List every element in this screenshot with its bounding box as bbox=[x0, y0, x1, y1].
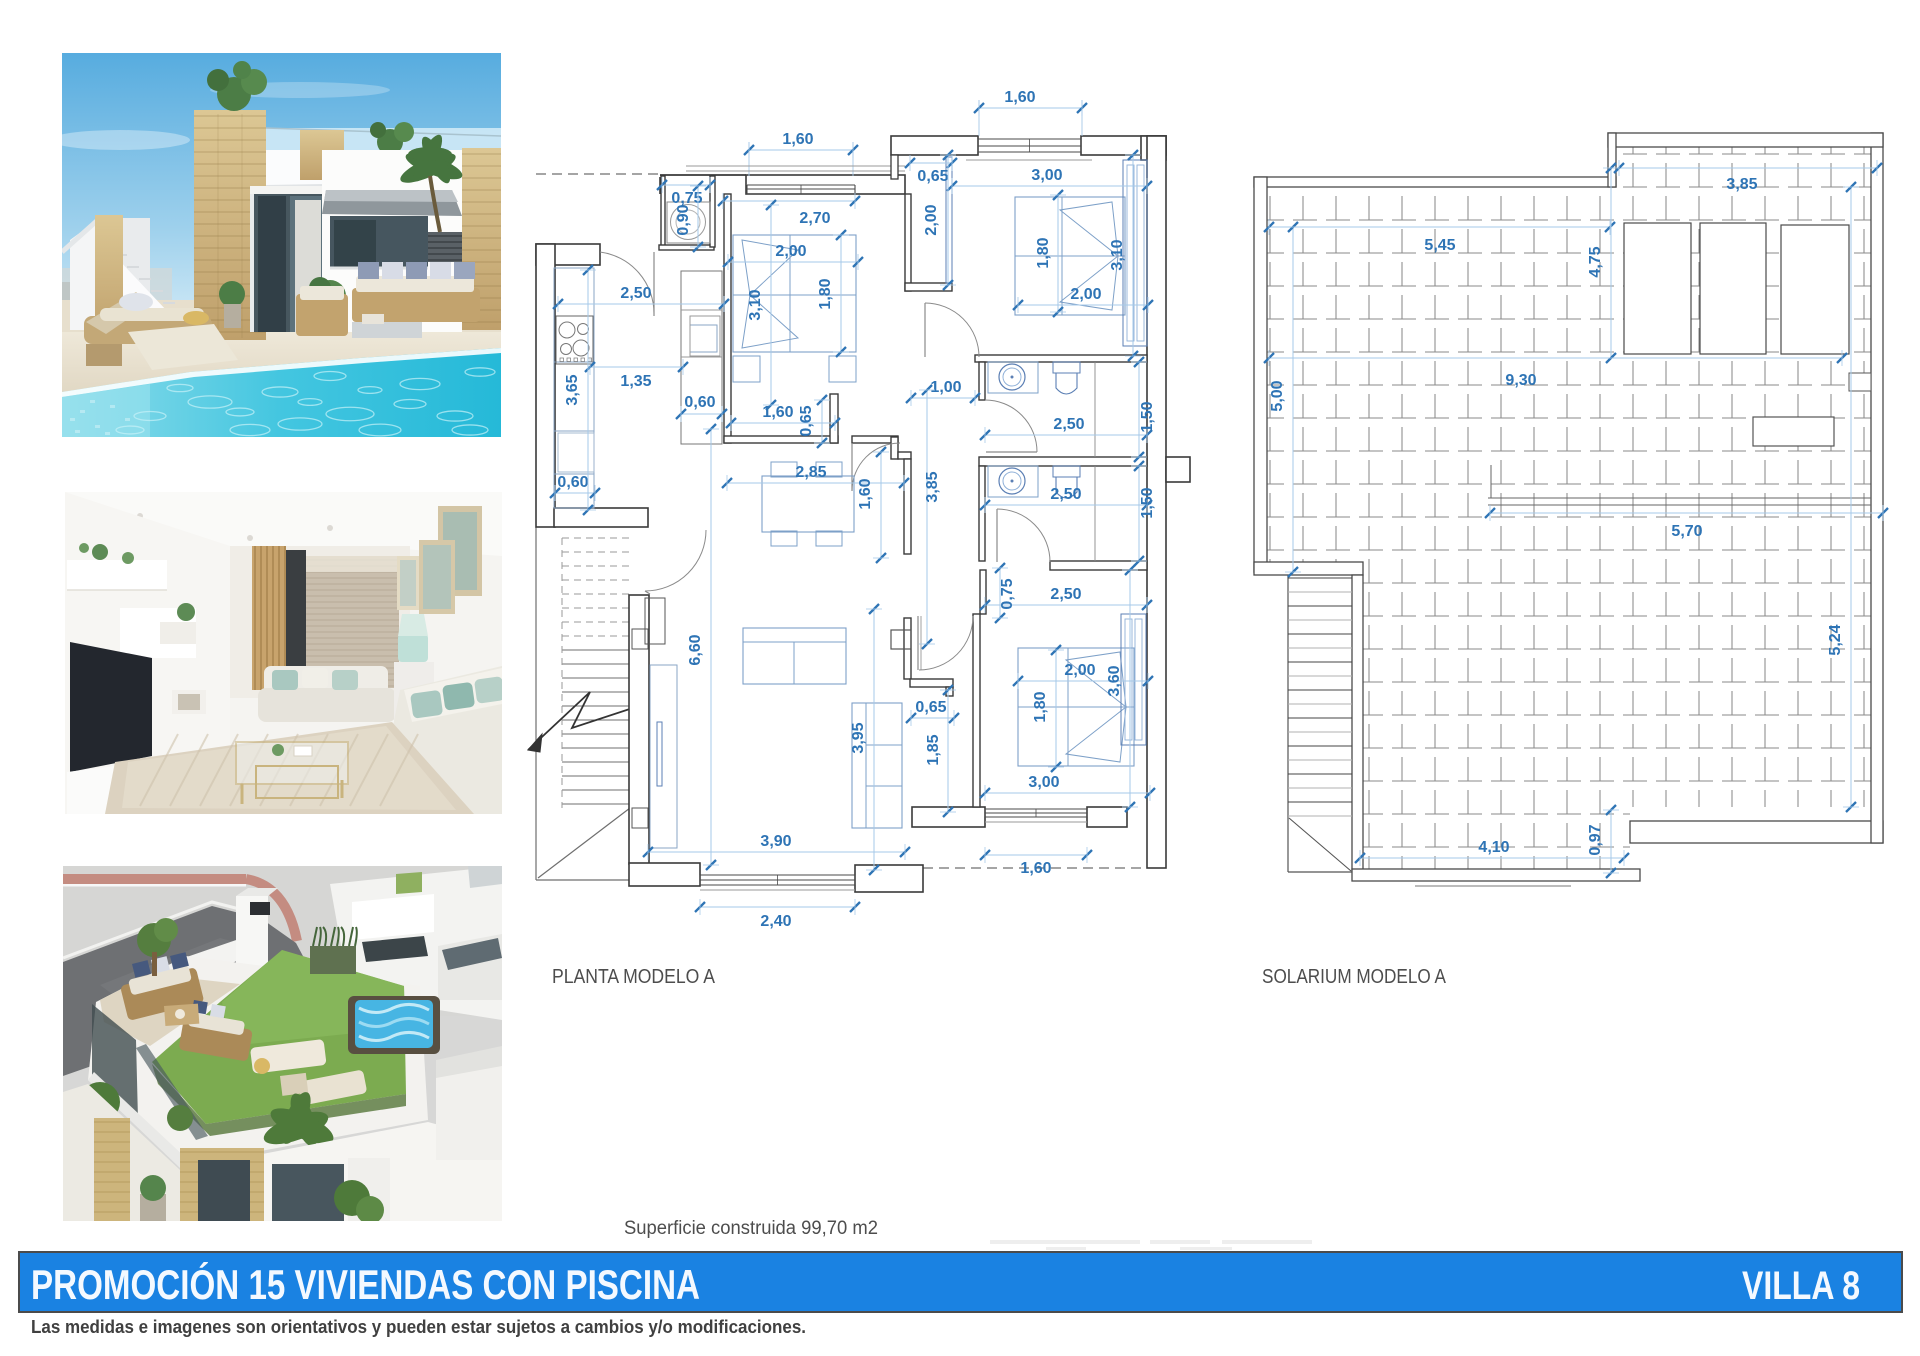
svg-text:4,10: 4,10 bbox=[1478, 839, 1509, 856]
svg-text:2,50: 2,50 bbox=[1050, 486, 1081, 503]
svg-text:1,60: 1,60 bbox=[857, 478, 874, 509]
svg-text:1,50: 1,50 bbox=[1139, 487, 1156, 518]
svg-text:0,65: 0,65 bbox=[798, 405, 815, 436]
svg-text:1,80: 1,80 bbox=[1032, 691, 1049, 722]
svg-text:3,10: 3,10 bbox=[1109, 239, 1126, 270]
svg-text:3,00: 3,00 bbox=[1031, 167, 1062, 184]
svg-text:0,65: 0,65 bbox=[917, 168, 948, 185]
svg-text:1,60: 1,60 bbox=[782, 131, 813, 148]
svg-text:1,60: 1,60 bbox=[1004, 89, 1035, 106]
svg-text:2,50: 2,50 bbox=[1053, 416, 1084, 433]
svg-text:0,65: 0,65 bbox=[915, 699, 946, 716]
svg-text:0,90: 0,90 bbox=[675, 204, 692, 235]
svg-text:1,35: 1,35 bbox=[620, 373, 651, 390]
svg-text:2,00: 2,00 bbox=[1064, 662, 1095, 679]
svg-text:0,75: 0,75 bbox=[999, 578, 1016, 609]
svg-text:3,85: 3,85 bbox=[1726, 176, 1757, 193]
svg-text:PROMOCIÓN 15 VIVIENDAS CON PIS: PROMOCIÓN 15 VIVIENDAS CON PISCINA bbox=[31, 1260, 700, 1308]
svg-text:3,60: 3,60 bbox=[1106, 665, 1123, 696]
svg-text:3,85: 3,85 bbox=[924, 471, 941, 502]
svg-text:5,45: 5,45 bbox=[1424, 237, 1455, 254]
svg-text:PLANTA MODELO A: PLANTA MODELO A bbox=[552, 966, 716, 988]
svg-text:2,85: 2,85 bbox=[795, 464, 826, 481]
svg-text:0,60: 0,60 bbox=[684, 394, 715, 411]
svg-text:9,30: 9,30 bbox=[1505, 372, 1536, 389]
svg-text:3,90: 3,90 bbox=[760, 833, 791, 850]
svg-text:0,97: 0,97 bbox=[1587, 824, 1604, 855]
svg-text:2,00: 2,00 bbox=[775, 243, 806, 260]
svg-text:4,75: 4,75 bbox=[1587, 246, 1604, 277]
svg-text:1,00: 1,00 bbox=[930, 379, 961, 396]
svg-text:1,85: 1,85 bbox=[925, 734, 942, 765]
svg-text:1,50: 1,50 bbox=[1139, 401, 1156, 432]
svg-text:0,60: 0,60 bbox=[557, 474, 588, 491]
svg-text:2,50: 2,50 bbox=[620, 285, 651, 302]
svg-text:2,50: 2,50 bbox=[1050, 586, 1081, 603]
svg-text:5,70: 5,70 bbox=[1671, 523, 1702, 540]
svg-text:3,00: 3,00 bbox=[1028, 774, 1059, 791]
svg-text:1,80: 1,80 bbox=[1035, 237, 1052, 268]
svg-text:2,00: 2,00 bbox=[923, 204, 940, 235]
svg-text:Las medidas e imagenes son ori: Las medidas e imagenes son orientativos … bbox=[31, 1316, 806, 1337]
svg-text:3,65: 3,65 bbox=[564, 374, 581, 405]
svg-text:3,95: 3,95 bbox=[850, 722, 867, 753]
svg-text:2,00: 2,00 bbox=[1070, 286, 1101, 303]
svg-text:5,24: 5,24 bbox=[1827, 624, 1844, 655]
svg-text:5,00: 5,00 bbox=[1269, 380, 1286, 411]
svg-text:Superficie construida 99,70 m2: Superficie construida 99,70 m2 bbox=[624, 1218, 878, 1239]
svg-text:1,80: 1,80 bbox=[817, 278, 834, 309]
svg-text:3,10: 3,10 bbox=[747, 289, 764, 320]
svg-text:6,60: 6,60 bbox=[687, 634, 704, 665]
svg-text:1,60: 1,60 bbox=[762, 404, 793, 421]
svg-text:2,70: 2,70 bbox=[799, 210, 830, 227]
svg-text:1,60: 1,60 bbox=[1020, 860, 1051, 877]
svg-text:VILLA 8: VILLA 8 bbox=[1742, 1264, 1860, 1308]
svg-text:2,40: 2,40 bbox=[760, 913, 791, 930]
svg-text:SOLARIUM MODELO A: SOLARIUM MODELO A bbox=[1262, 966, 1447, 988]
